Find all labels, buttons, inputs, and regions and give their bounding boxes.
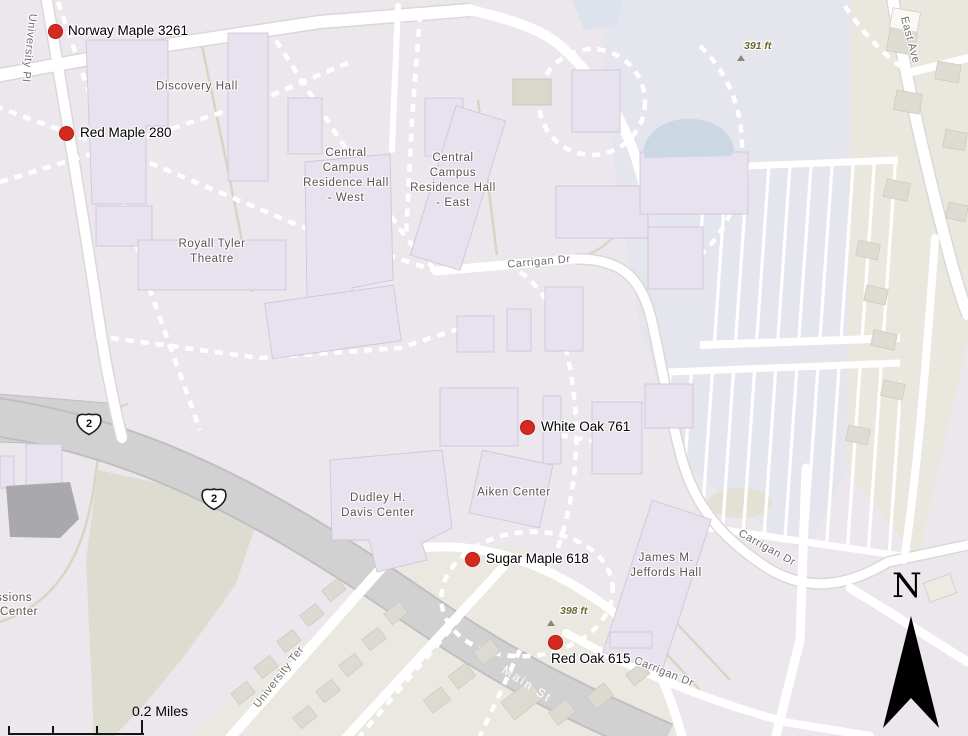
building-label-royall-tyler-theatre: Royall Tyler Theatre — [178, 237, 245, 267]
elevation-triangle-icon — [737, 55, 745, 61]
building-label-ccrh-west: Central Campus Residence Hall - West — [303, 146, 389, 206]
north-arrow-icon — [865, 558, 965, 736]
tree-marker-label: Red Oak 615 — [551, 651, 631, 666]
tree-marker-dot-icon — [48, 24, 63, 39]
tree-marker-dot-icon — [59, 126, 74, 141]
building-label-ccrh-east: Central Campus Residence Hall - East — [410, 151, 496, 211]
route-number: 2 — [86, 418, 92, 430]
building-label-jeffords-hall: James M. Jeffords Hall — [630, 551, 702, 581]
elevation-label-398ft: 398 ft — [560, 605, 587, 617]
building-label-davis-center: Dudley H. Davis Center — [341, 491, 415, 521]
tree-marker-label: Red Maple 280 — [80, 125, 172, 140]
building-label-partial-ssions: ssions — [0, 591, 32, 606]
us-route-2-shield: 2 — [74, 410, 104, 437]
scale-bar — [8, 719, 144, 735]
scale-bar-label: 0.2 Miles — [132, 703, 188, 719]
tree-marker-label: White Oak 761 — [541, 419, 630, 434]
us-route-2-shield: 2 — [199, 485, 229, 512]
route-number: 2 — [211, 493, 217, 505]
tree-marker-label: Norway Maple 3261 — [68, 23, 188, 38]
building-label-partial-center: Center — [0, 605, 38, 620]
tree-marker-dot-icon — [465, 552, 480, 567]
map-base-graphics — [0, 0, 968, 736]
elevation-label-391ft: 391 ft — [744, 40, 771, 52]
building-label-discovery-hall: Discovery Hall — [156, 80, 238, 95]
building-label-aiken-center: Aiken Center — [477, 486, 551, 501]
tree-marker-dot-icon — [548, 635, 563, 650]
campus-map[interactable]: Discovery Hall Royall Tyler Theatre Cent… — [0, 0, 968, 736]
elevation-triangle-icon — [547, 620, 555, 626]
tree-marker-label: Sugar Maple 618 — [486, 551, 589, 566]
tree-marker-dot-icon — [520, 420, 535, 435]
